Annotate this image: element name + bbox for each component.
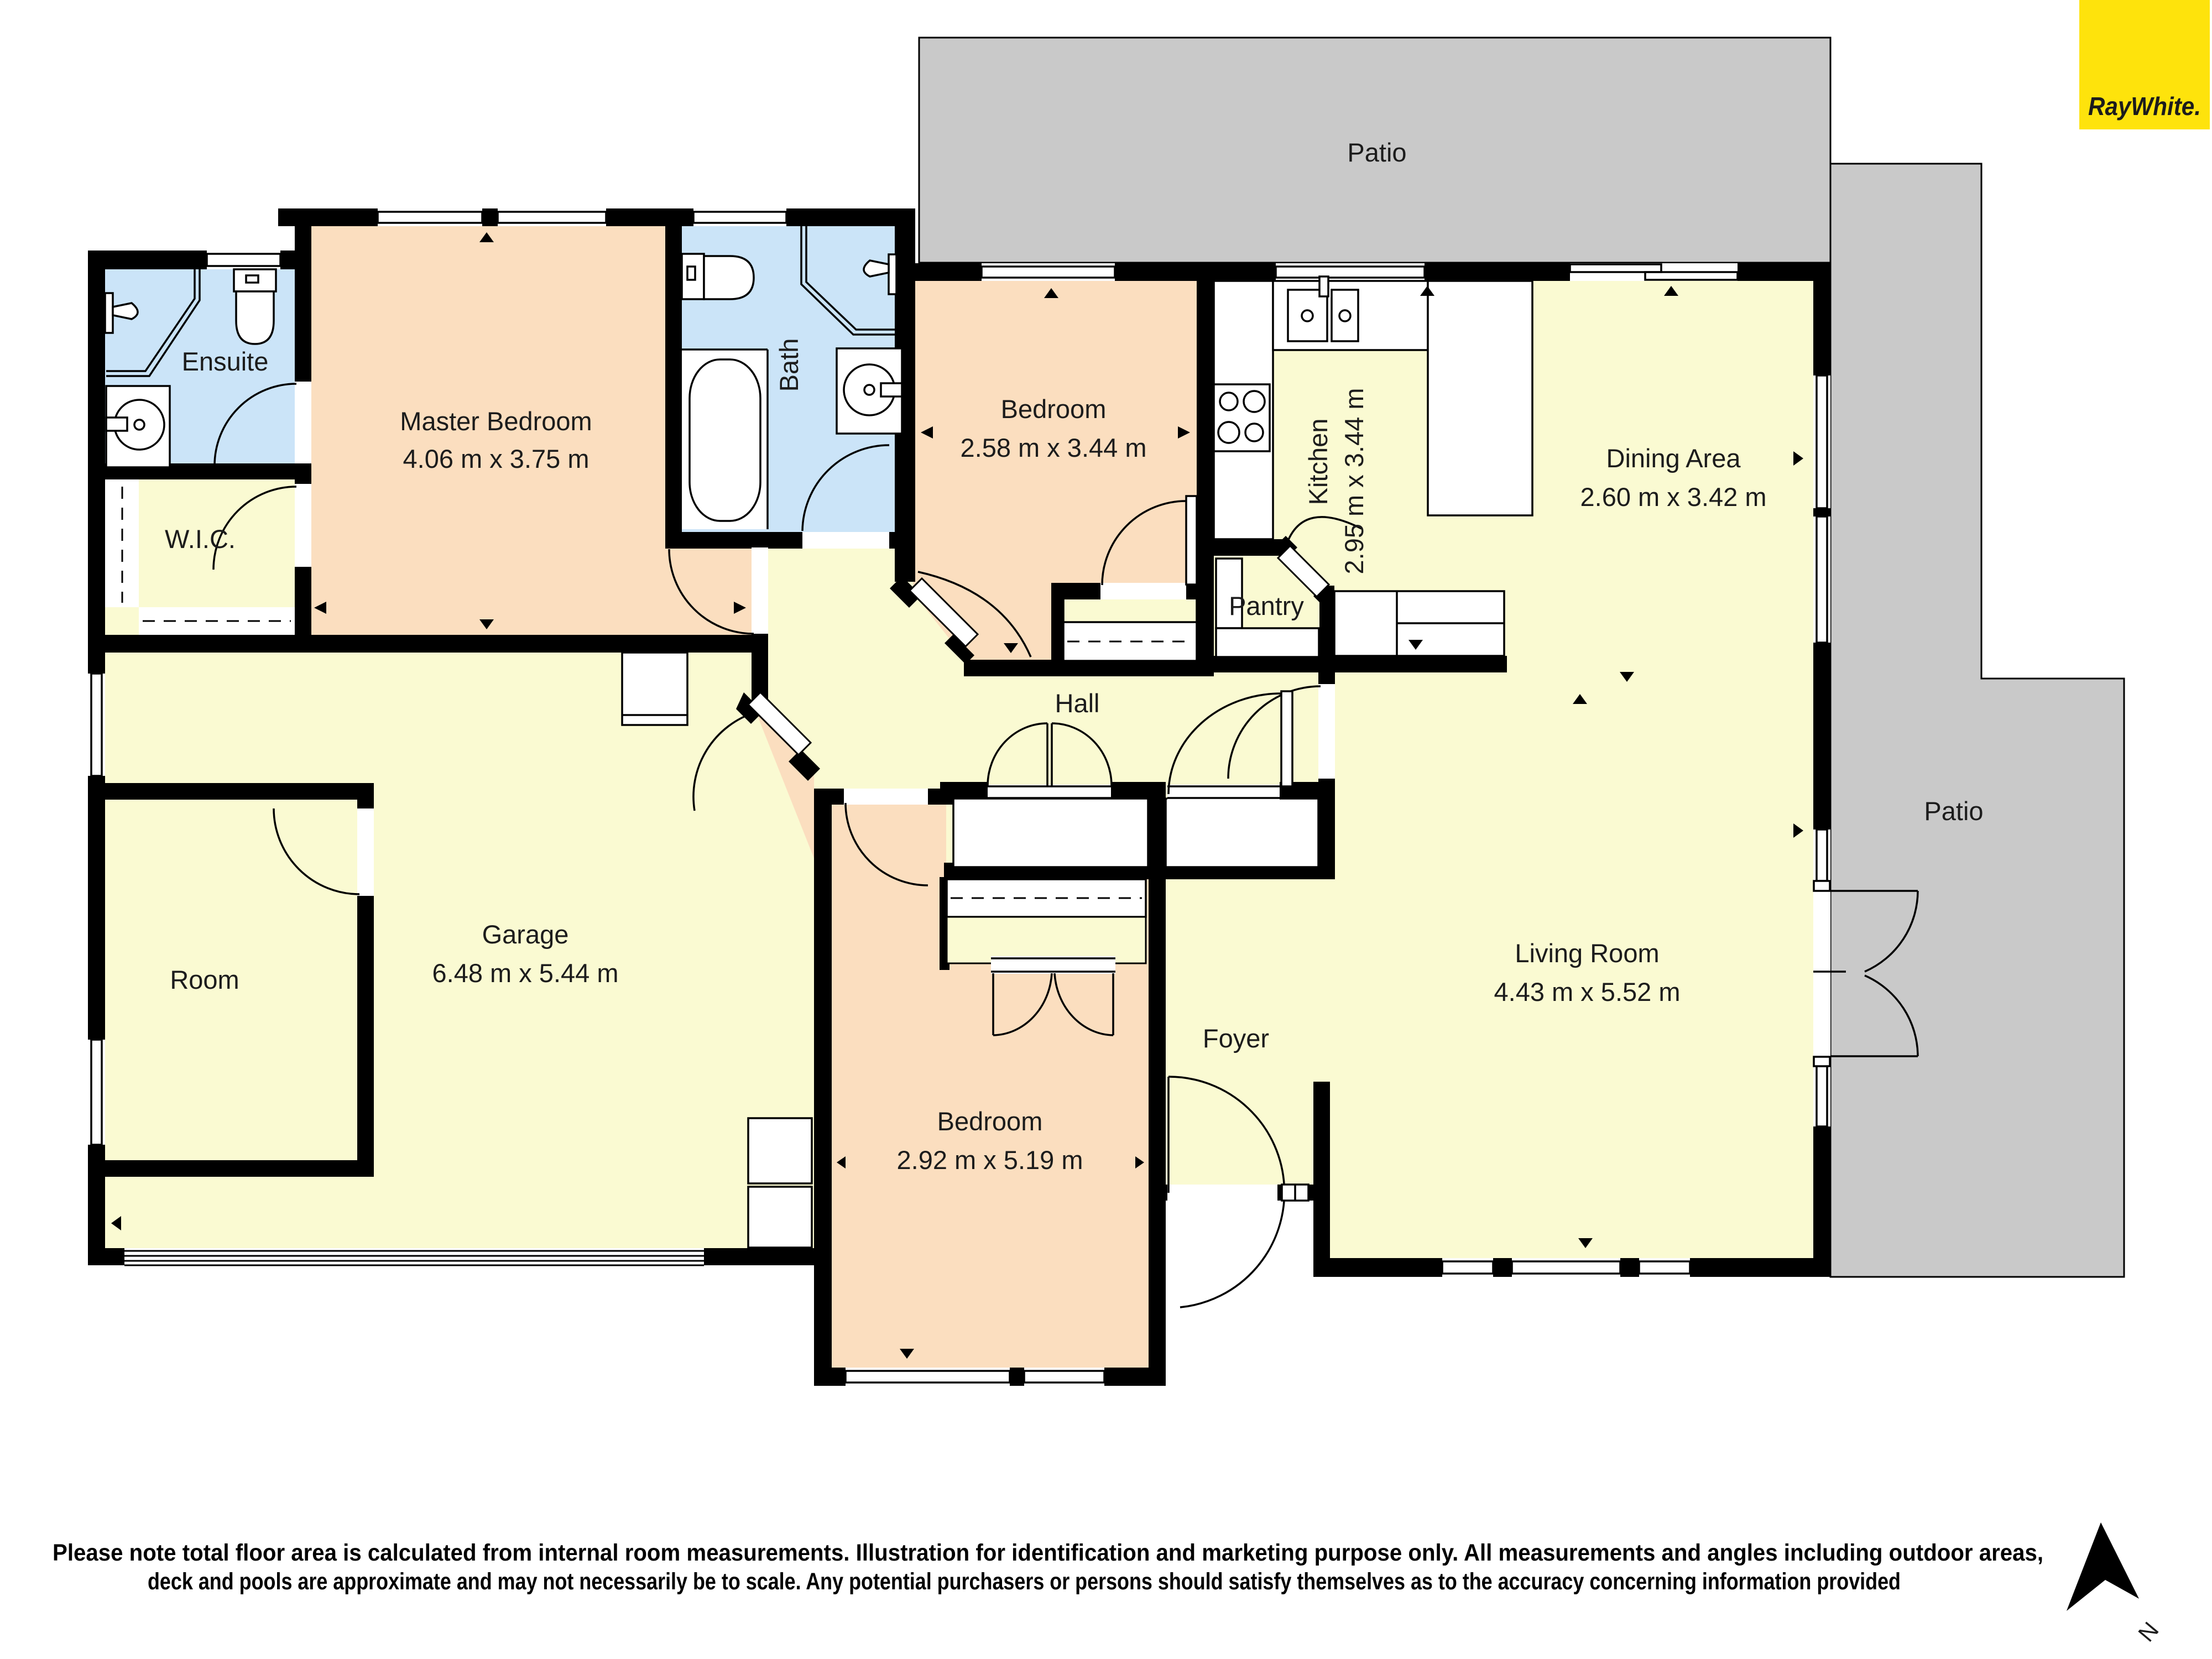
svg-text:Living Room: Living Room	[1515, 938, 1659, 968]
svg-text:2.60 m x 3.42 m: 2.60 m x 3.42 m	[1580, 482, 1767, 512]
svg-text:Ensuite: Ensuite	[182, 347, 269, 376]
svg-text:Bath: Bath	[774, 338, 804, 392]
svg-text:Dining Area: Dining Area	[1606, 444, 1741, 473]
svg-text:Hall: Hall	[1055, 688, 1100, 718]
svg-text:2.92 m x 5.19 m: 2.92 m x 5.19 m	[897, 1145, 1083, 1175]
svg-text:4.06 m x 3.75 m: 4.06 m x 3.75 m	[403, 444, 589, 473]
svg-text:Bedroom: Bedroom	[937, 1107, 1043, 1136]
svg-text:Garage: Garage	[482, 920, 569, 949]
svg-text:Please note total floor area i: Please note total floor area is calculat…	[53, 1540, 2043, 1566]
svg-text:2.58 m x 3.44 m: 2.58 m x 3.44 m	[961, 433, 1147, 462]
svg-text:RayWhite.: RayWhite.	[2088, 92, 2201, 121]
svg-text:W.I.C.: W.I.C.	[165, 524, 236, 554]
svg-text:4.43 m x 5.52 m: 4.43 m x 5.52 m	[1494, 977, 1681, 1006]
svg-text:Kitchen: Kitchen	[1303, 419, 1333, 505]
svg-text:Master Bedroom: Master Bedroom	[400, 406, 592, 436]
svg-text:2.95 m x 3.44 m: 2.95 m x 3.44 m	[1339, 388, 1369, 575]
svg-text:Foyer: Foyer	[1203, 1024, 1269, 1053]
svg-text:deck and pools are approximate: deck and pools are approximate and may n…	[148, 1568, 1901, 1595]
svg-text:Patio: Patio	[1347, 138, 1406, 167]
svg-text:Patio: Patio	[1924, 796, 1983, 826]
svg-text:Bedroom: Bedroom	[1001, 394, 1107, 424]
svg-text:6.48 m x 5.44 m: 6.48 m x 5.44 m	[432, 958, 619, 988]
svg-text:Pantry: Pantry	[1229, 591, 1304, 620]
svg-text:Room: Room	[170, 965, 239, 994]
